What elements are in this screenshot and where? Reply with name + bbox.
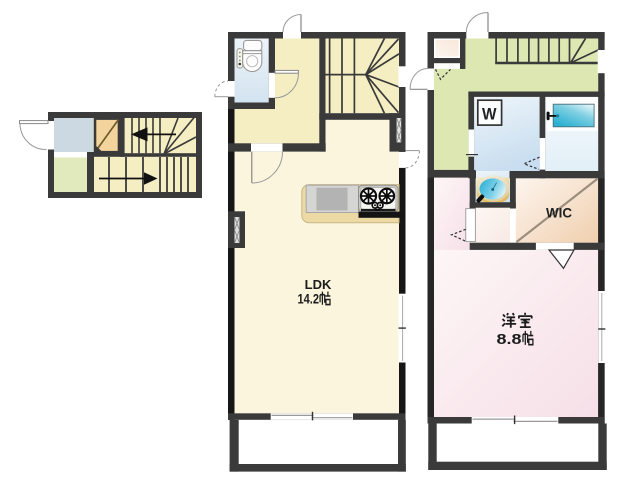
svg-text:W: W [482, 105, 497, 124]
svg-text:LDK: LDK [305, 277, 332, 292]
svg-text:8.8: 8.8 [497, 331, 522, 348]
svg-text:WIC: WIC [546, 204, 572, 220]
svg-text:14.2: 14.2 [298, 291, 320, 306]
